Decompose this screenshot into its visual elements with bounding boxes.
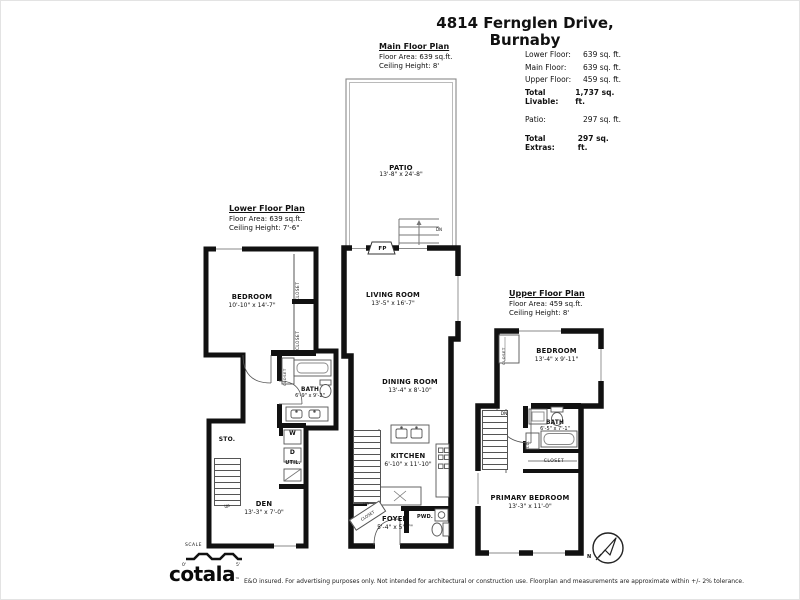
trademark-mark: ™ (235, 577, 240, 583)
stairs-lower (214, 458, 241, 506)
plan-ceiling: Ceiling Height: 8' (509, 309, 585, 317)
bathtub-icon (541, 431, 577, 447)
closet-label-bedroom-2: CLOSET (296, 312, 301, 350)
plan-name: Main Floor Plan (379, 42, 453, 51)
room-name: DINING ROOM (371, 379, 449, 387)
room-label-bath-upper: BATH 6'-5" x 7'-1" (529, 420, 581, 432)
room-label-bedroom-upper: BEDROOM 13'-4" x 9'-11" (514, 348, 599, 364)
room-dims: 13'-8" x 24'-8" (361, 172, 441, 179)
summary-row-patio: Patio: 297 sq. ft. (525, 115, 621, 124)
closet-label-bedroom-1: CLOSET (296, 259, 301, 301)
plan-ceiling: Ceiling Height: 8' (379, 62, 453, 70)
summary-value: 297 sq. ft. (578, 134, 621, 152)
room-dims: 6'-10" x 11'-10" (369, 462, 447, 469)
plan-name: Upper Floor Plan (509, 289, 585, 298)
room-dims: 13'-3" x 7'-0" (224, 510, 304, 517)
room-label-kitchen: KITCHEN 6'-10" x 11'-10" (369, 453, 447, 469)
room-dims: 10'-10" x 14'-7" (209, 303, 295, 310)
room-label-dining-room: DINING ROOM 13'-4" x 8'-10" (371, 379, 449, 395)
room-name: KITCHEN (369, 453, 447, 461)
summary-value: 639 sq. ft. (583, 63, 621, 72)
plan-header-lower: Lower Floor Plan Floor Area: 639 sq.ft. … (229, 204, 305, 232)
logo-text: cotala (169, 562, 235, 586)
washer-label: W (284, 431, 301, 438)
plan-ceiling: Ceiling Height: 7'-6" (229, 224, 305, 232)
area-summary: Lower Floor: 639 sq. ft. Main Floor: 639… (525, 50, 621, 155)
room-dims: 13'-4" x 9'-11" (514, 357, 599, 364)
summary-row-total-livable: Total Livable: 1,737 sq. ft. (525, 88, 621, 106)
room-label-bath-lower: BATH 6'-9" x 9'-2" (286, 387, 334, 399)
dn-label-upper: DN (495, 412, 513, 417)
room-label-primary-bedroom: PRIMARY BEDROOM 13'-3" x 11'-0" (482, 495, 578, 511)
plan-area: Floor Area: 639 sq.ft. (379, 53, 453, 61)
summary-value: 297 sq. ft. (583, 115, 621, 124)
room-dims: 13'-3" x 11'-0" (482, 504, 578, 511)
up-label-main: UP (356, 503, 376, 508)
compass-n-label: N (587, 555, 591, 561)
plan-header-main: Main Floor Plan Floor Area: 639 sq.ft. C… (379, 42, 453, 70)
room-name: PRIMARY BEDROOM (482, 495, 578, 503)
up-label-lower: UP (218, 505, 236, 510)
summary-value: 639 sq. ft. (583, 50, 621, 59)
room-label-living-room: LIVING ROOM 13'-5" x 16'-7" (349, 292, 437, 308)
cotala-logo: cotala™ (169, 563, 240, 586)
room-label-utility: UTIL. (278, 461, 308, 467)
summary-row-upper: Upper Floor: 459 sq. ft. (525, 75, 621, 84)
closet-label-hall: CLOSET (283, 360, 287, 386)
summary-label: Total Extras: (525, 134, 578, 152)
room-name: BEDROOM (514, 348, 599, 356)
summary-label: Total Livable: (525, 88, 575, 106)
summary-value: 1,737 sq. ft. (575, 88, 621, 106)
closet-label-upper-bedroom: CLOSET (502, 338, 506, 365)
room-dims: 5'-4" x 5'-7" (356, 525, 434, 532)
dryer-label: D (284, 450, 301, 457)
room-name: DEN (224, 501, 304, 509)
summary-row-main: Main Floor: 639 sq. ft. (525, 63, 621, 72)
room-dims: 13'-5" x 16'-7" (349, 301, 437, 308)
plan-name: Lower Floor Plan (229, 204, 305, 213)
summary-label: Main Floor: (525, 63, 566, 72)
dn-label-patio: DN (431, 228, 447, 233)
plan-area: Floor Area: 639 sq.ft. (229, 215, 305, 223)
footer-disclaimer: E&O insured. For advertising purposes on… (244, 579, 774, 586)
summary-row-lower: Lower Floor: 639 sq. ft. (525, 50, 621, 59)
scale-label: SCALE (185, 543, 202, 548)
room-label-storage: STO. (213, 437, 241, 444)
room-dims: 6'-9" x 9'-2" (286, 394, 334, 400)
room-name: BEDROOM (209, 294, 295, 302)
summary-value: 459 sq. ft. (583, 75, 621, 84)
summary-label: Patio: (525, 115, 546, 124)
fireplace-label: FP (369, 244, 396, 255)
compass-icon (585, 523, 633, 571)
room-label-powder: PWD. (413, 515, 437, 521)
summary-row-total-extras: Total Extras: 297 sq. ft. (525, 134, 621, 152)
floorplan-page: 4814 Fernglen Drive, Burnaby Lower Floor… (0, 0, 800, 600)
bathtub-icon (294, 360, 331, 376)
summary-label: Upper Floor: (525, 75, 571, 84)
room-name: LIVING ROOM (349, 292, 437, 300)
plan-area: Floor Area: 459 sq.ft. (509, 300, 585, 308)
clo-label-upper: CLO. (526, 435, 530, 451)
room-label-den: DEN 13'-3" x 7'-0" (224, 501, 304, 517)
stairs-upper (482, 410, 508, 470)
room-dims: 13'-4" x 8'-10" (371, 388, 449, 395)
vanity-sink-icon (286, 407, 328, 421)
room-dims: 6'-5" x 7'-1" (529, 427, 581, 433)
plan-header-upper: Upper Floor Plan Floor Area: 459 sq.ft. … (509, 289, 585, 317)
room-label-patio: PATIO 13'-8" x 24'-8" (361, 164, 441, 179)
summary-label: Lower Floor: (525, 50, 571, 59)
room-label-bedroom-lower: BEDROOM 10'-10" x 14'-7" (209, 294, 295, 310)
closet-label-upper-hall: CLOSET (533, 459, 575, 464)
